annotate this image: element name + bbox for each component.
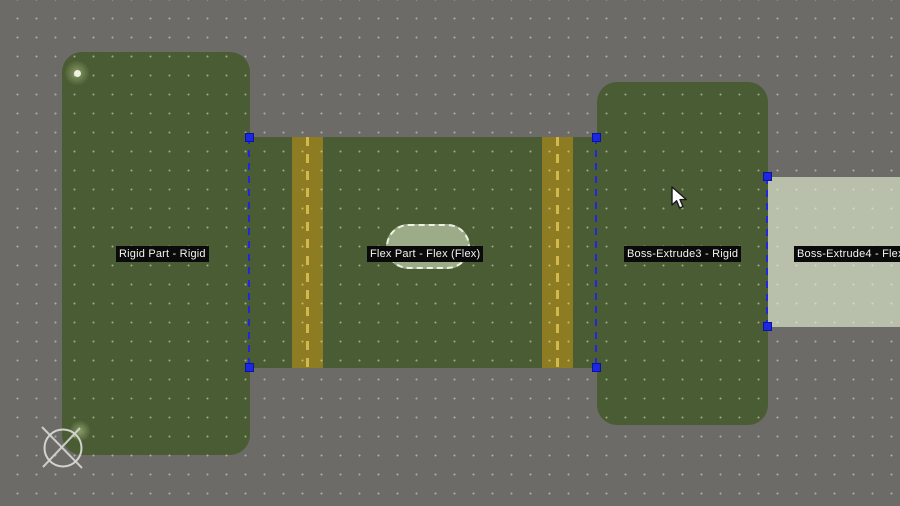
selection-handle[interactable] bbox=[763, 322, 772, 331]
cursor-arrow-icon bbox=[671, 186, 693, 212]
road-stripe-right bbox=[542, 137, 573, 368]
selection-handle[interactable] bbox=[592, 133, 601, 142]
selection-handle[interactable] bbox=[245, 363, 254, 372]
selection-handle[interactable] bbox=[592, 363, 601, 372]
selection-edge-left[interactable] bbox=[248, 137, 250, 368]
selection-edge-mid[interactable] bbox=[595, 137, 597, 368]
road-stripe-left bbox=[292, 137, 323, 368]
rigid-part-label: Rigid Part - Rigid bbox=[116, 246, 209, 262]
cad-graphics-area[interactable]: Rigid Part - Rigid Flex Part - Flex (Fle… bbox=[0, 0, 900, 506]
vertex-point-icon bbox=[74, 70, 81, 77]
selection-handle[interactable] bbox=[245, 133, 254, 142]
road-stripe-left-centerline bbox=[306, 137, 309, 368]
boss-extrude3-label: Boss-Extrude3 - Rigid bbox=[624, 246, 741, 262]
road-stripe-right-centerline bbox=[556, 137, 559, 368]
selection-handle[interactable] bbox=[763, 172, 772, 181]
boss-extrude4-label: Boss-Extrude4 - Flex bbox=[794, 246, 900, 262]
selection-edge-right[interactable] bbox=[766, 177, 768, 327]
crossed-circle-icon bbox=[35, 419, 93, 477]
flex-part-label: Flex Part - Flex (Flex) bbox=[367, 246, 483, 262]
